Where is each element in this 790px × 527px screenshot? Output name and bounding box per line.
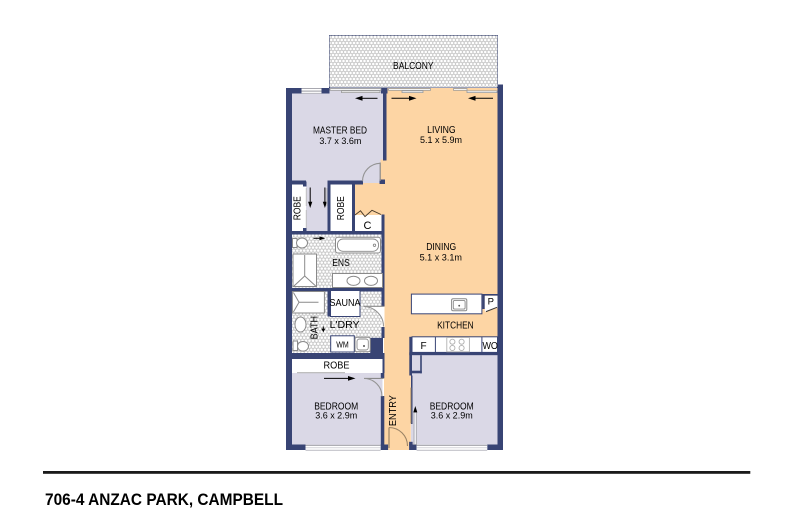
svg-text:BALCONY: BALCONY bbox=[393, 61, 434, 72]
svg-text:706-4 ANZAC PARK, CAMPBELL: 706-4 ANZAC PARK, CAMPBELL bbox=[45, 490, 283, 509]
svg-text:MASTER BED: MASTER BED bbox=[313, 126, 367, 137]
svg-text:WO: WO bbox=[482, 341, 498, 352]
svg-text:3.6 x 2.9m: 3.6 x 2.9m bbox=[431, 410, 473, 421]
svg-text:WM: WM bbox=[336, 341, 349, 350]
svg-text:ENTRY: ENTRY bbox=[388, 395, 399, 426]
svg-text:P: P bbox=[488, 297, 494, 308]
svg-text:F: F bbox=[420, 341, 426, 352]
svg-text:ENS: ENS bbox=[332, 258, 350, 269]
svg-text:L'DRY: L'DRY bbox=[330, 320, 360, 331]
svg-text:C: C bbox=[364, 220, 372, 232]
svg-text:DINING: DINING bbox=[426, 242, 456, 253]
svg-text:ROBE: ROBE bbox=[336, 196, 347, 220]
svg-text:3.7 x 3.6m: 3.7 x 3.6m bbox=[319, 136, 361, 147]
svg-text:5.1 x 3.1m: 5.1 x 3.1m bbox=[420, 253, 462, 264]
svg-text:3.6 x 2.9m: 3.6 x 2.9m bbox=[315, 410, 357, 421]
svg-text:KITCHEN: KITCHEN bbox=[437, 321, 474, 332]
svg-text:LIVING: LIVING bbox=[427, 125, 456, 136]
svg-text:5.1 x 5.9m: 5.1 x 5.9m bbox=[420, 135, 462, 146]
svg-text:BATH: BATH bbox=[309, 316, 320, 339]
svg-text:SAUNA: SAUNA bbox=[330, 298, 361, 309]
svg-text:ROBE: ROBE bbox=[324, 360, 350, 371]
svg-text:ROBE: ROBE bbox=[292, 196, 303, 220]
